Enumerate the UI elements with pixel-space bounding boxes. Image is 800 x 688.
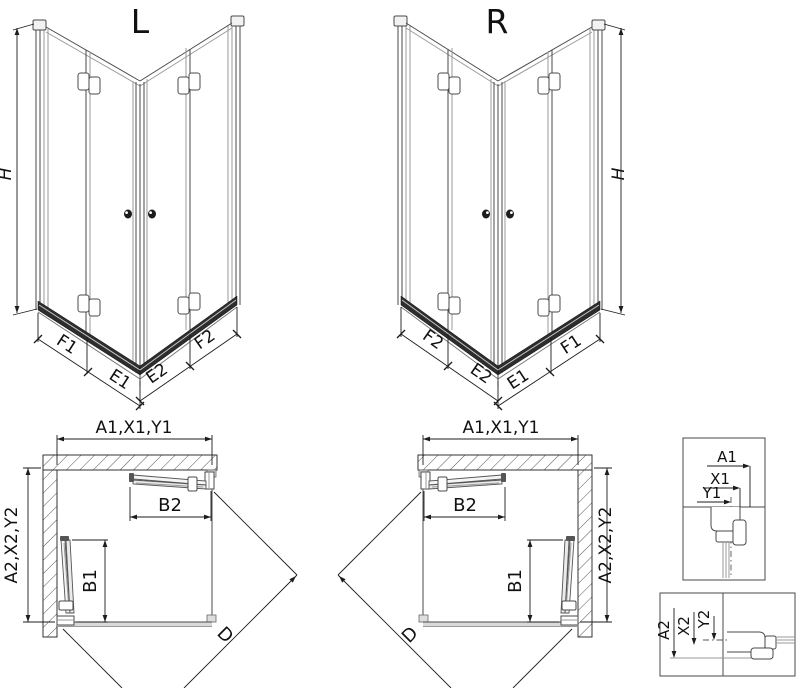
dim-f1: F1 [53, 331, 81, 359]
plan-view-left-version: A1,X1,Y1 A2,X2,Y2 B2 B1 D [0, 415, 330, 688]
wall-side [43, 470, 57, 637]
height-dim-label: H [0, 167, 16, 180]
dim-b1: B1 [80, 569, 101, 593]
detail-section-horizontal: A1 X1 Y1 [670, 430, 790, 588]
wall-top [418, 455, 592, 470]
3d-view-right-version: R H F2 E2 E1 F1 [360, 0, 640, 410]
version-label-right: R [486, 2, 509, 41]
dim-e1: E1 [105, 366, 134, 395]
dim-a1x1y1: A1,X1,Y1 [463, 418, 540, 438]
3d-view-left-version: L H F1 E1 E2 F2 [0, 0, 280, 410]
detail-dim-a1: A1 [717, 448, 737, 466]
dim-a2x2y2: A2,X2,Y2 [596, 507, 616, 584]
version-label-left: L [131, 2, 150, 41]
dim-a1x1y1: A1,X1,Y1 [96, 418, 173, 438]
dim-d: D [213, 623, 238, 648]
height-dim-label: H [609, 167, 629, 180]
wall-side [578, 470, 592, 637]
wall-top [43, 455, 217, 470]
dim-b2: B2 [158, 495, 182, 516]
detail-dim-y2: Y2 [695, 610, 713, 630]
dim-b2: B2 [453, 495, 477, 516]
dim-b1: B1 [505, 569, 526, 593]
detail-dim-x2: X2 [675, 616, 693, 636]
detail-dim-y1: Y1 [702, 484, 722, 502]
dim-e1: E1 [504, 366, 533, 395]
plan-view-right-version: A1,X1,Y1 A2,X2,Y2 B2 B1 D [330, 415, 660, 688]
shower-enclosure-technical-drawing: L H F1 E1 E2 F2 R H F2 E2 E1 F1 A1,X1,Y1… [0, 0, 800, 688]
dim-f1: F1 [557, 331, 585, 359]
dim-a2x2y2: A2,X2,Y2 [2, 507, 22, 584]
detail-dim-a2: A2 [655, 620, 673, 640]
detail-section-vertical: A2 X2 Y2 [648, 586, 800, 688]
dim-d: D [398, 623, 423, 648]
